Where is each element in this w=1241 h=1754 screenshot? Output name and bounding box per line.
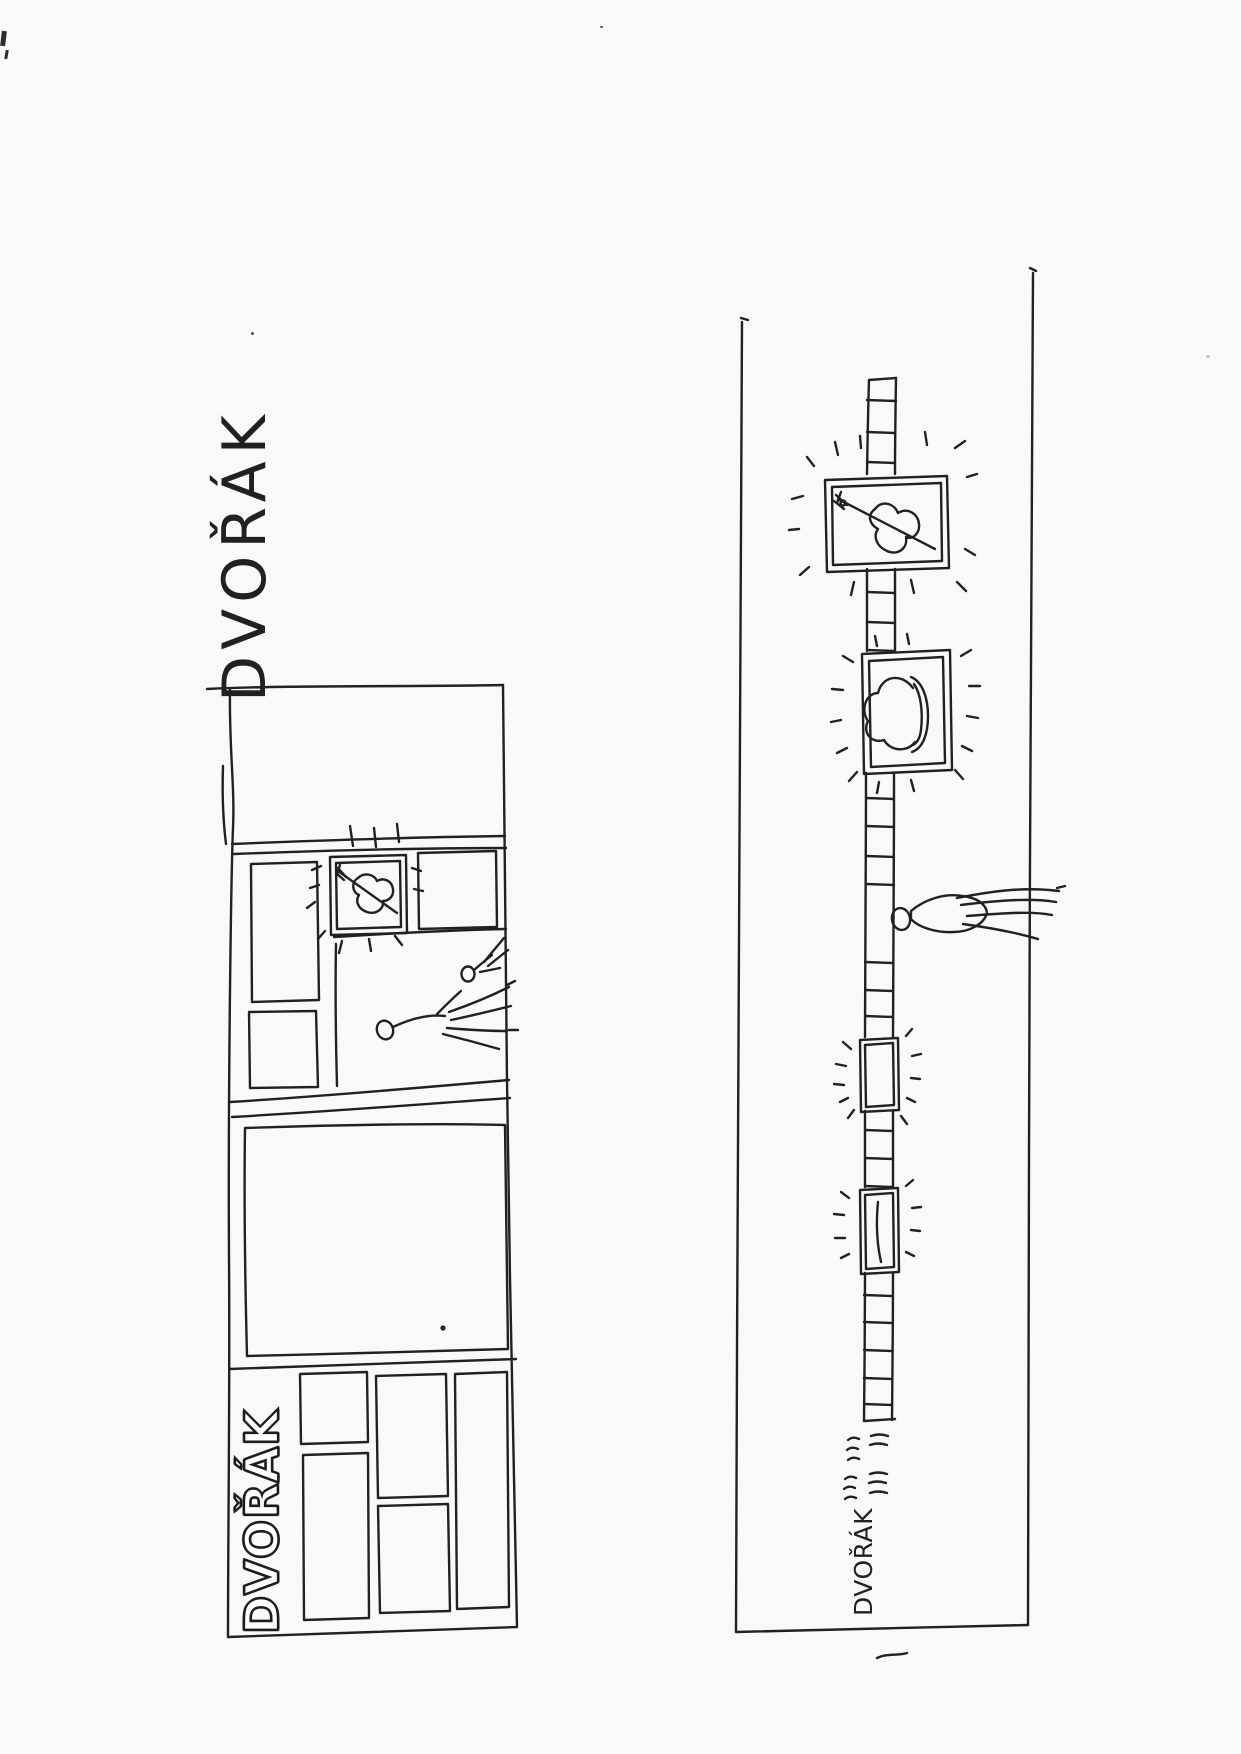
small-figure-head	[462, 967, 475, 982]
room-rect-2	[249, 1011, 318, 1088]
scan-speck	[600, 26, 603, 28]
scan-speck	[251, 332, 254, 335]
main-title-label: DVOŘÁK	[214, 317, 286, 702]
case-2-top	[376, 1374, 448, 1498]
small-frame-empty	[860, 1038, 899, 1112]
display-cases	[300, 1372, 509, 1620]
scan-edge-mark	[0, 31, 7, 46]
scan-speck	[1206, 355, 1210, 358]
violin-icon	[834, 492, 935, 553]
wall-band-middle	[230, 1080, 510, 1117]
large-figure-torso	[393, 1016, 445, 1027]
approx-marks-upper	[847, 1435, 888, 1461]
small-frame-baton	[860, 1188, 899, 1274]
left-border	[228, 690, 233, 1637]
hat-icon	[864, 677, 928, 752]
large-figure-limbs	[443, 987, 511, 1049]
case-3-tall	[455, 1372, 509, 1609]
pencil-squiggle	[877, 1653, 907, 1658]
large-room	[245, 1124, 508, 1356]
figure-room	[334, 929, 506, 1086]
hat-frame-outer	[862, 650, 952, 774]
baton-icon	[877, 1202, 881, 1262]
small-figure-arms	[484, 938, 508, 966]
hat-frame-inner	[869, 657, 945, 767]
room-rect-1	[251, 862, 319, 1002]
corridor-label: DVOŘÁK	[851, 1491, 885, 1616]
small-figure-leg	[480, 968, 500, 972]
violin-icon	[336, 865, 397, 913]
figure-hand	[1057, 886, 1065, 888]
hat-frame	[862, 650, 952, 774]
paper-sheet: DVOŘÁK	[0, 0, 1241, 1754]
small-frame-empty-inner	[865, 1043, 894, 1107]
left-wall	[736, 318, 748, 1632]
small-rooms-upper	[249, 862, 319, 1088]
hat-brim-inner	[913, 684, 922, 745]
violin-frame-outer	[330, 855, 407, 935]
large-figure-head	[374, 1018, 396, 1041]
right-panel-sketch	[715, 252, 1075, 1672]
hat-crown	[864, 678, 915, 749]
right-wall	[1028, 268, 1036, 1625]
storefront-logo-label: DVOŘÁK	[238, 1419, 304, 1634]
corridor-walls	[736, 268, 1036, 1632]
violin-frame	[330, 855, 407, 935]
path-bottom-edge	[864, 1419, 895, 1421]
case-2-bottom	[378, 1504, 450, 1613]
case-1-top	[300, 1372, 368, 1444]
visitor-figure	[890, 886, 1065, 939]
approx-marks	[844, 1435, 888, 1500]
ink-dot	[442, 1327, 445, 1330]
wall-band-bottom	[230, 1359, 516, 1369]
empty-frame-right	[418, 851, 497, 929]
top-border	[207, 685, 503, 689]
left-border-double-stroke	[223, 766, 226, 844]
figure-legs	[963, 913, 1052, 939]
violin-pegs	[336, 865, 346, 880]
case-1-bottom	[303, 1453, 369, 1620]
visitor-figures	[374, 938, 518, 1049]
figure-room-left-edge	[336, 944, 337, 1086]
violin-bow	[838, 499, 935, 549]
bottom-wall	[736, 1625, 1028, 1632]
path-top-edge	[869, 378, 896, 380]
scan-edge-mark	[4, 50, 9, 59]
checkered-path	[864, 378, 896, 1421]
large-figure-arm	[437, 991, 461, 1014]
figure-room-top-edge	[334, 929, 506, 937]
